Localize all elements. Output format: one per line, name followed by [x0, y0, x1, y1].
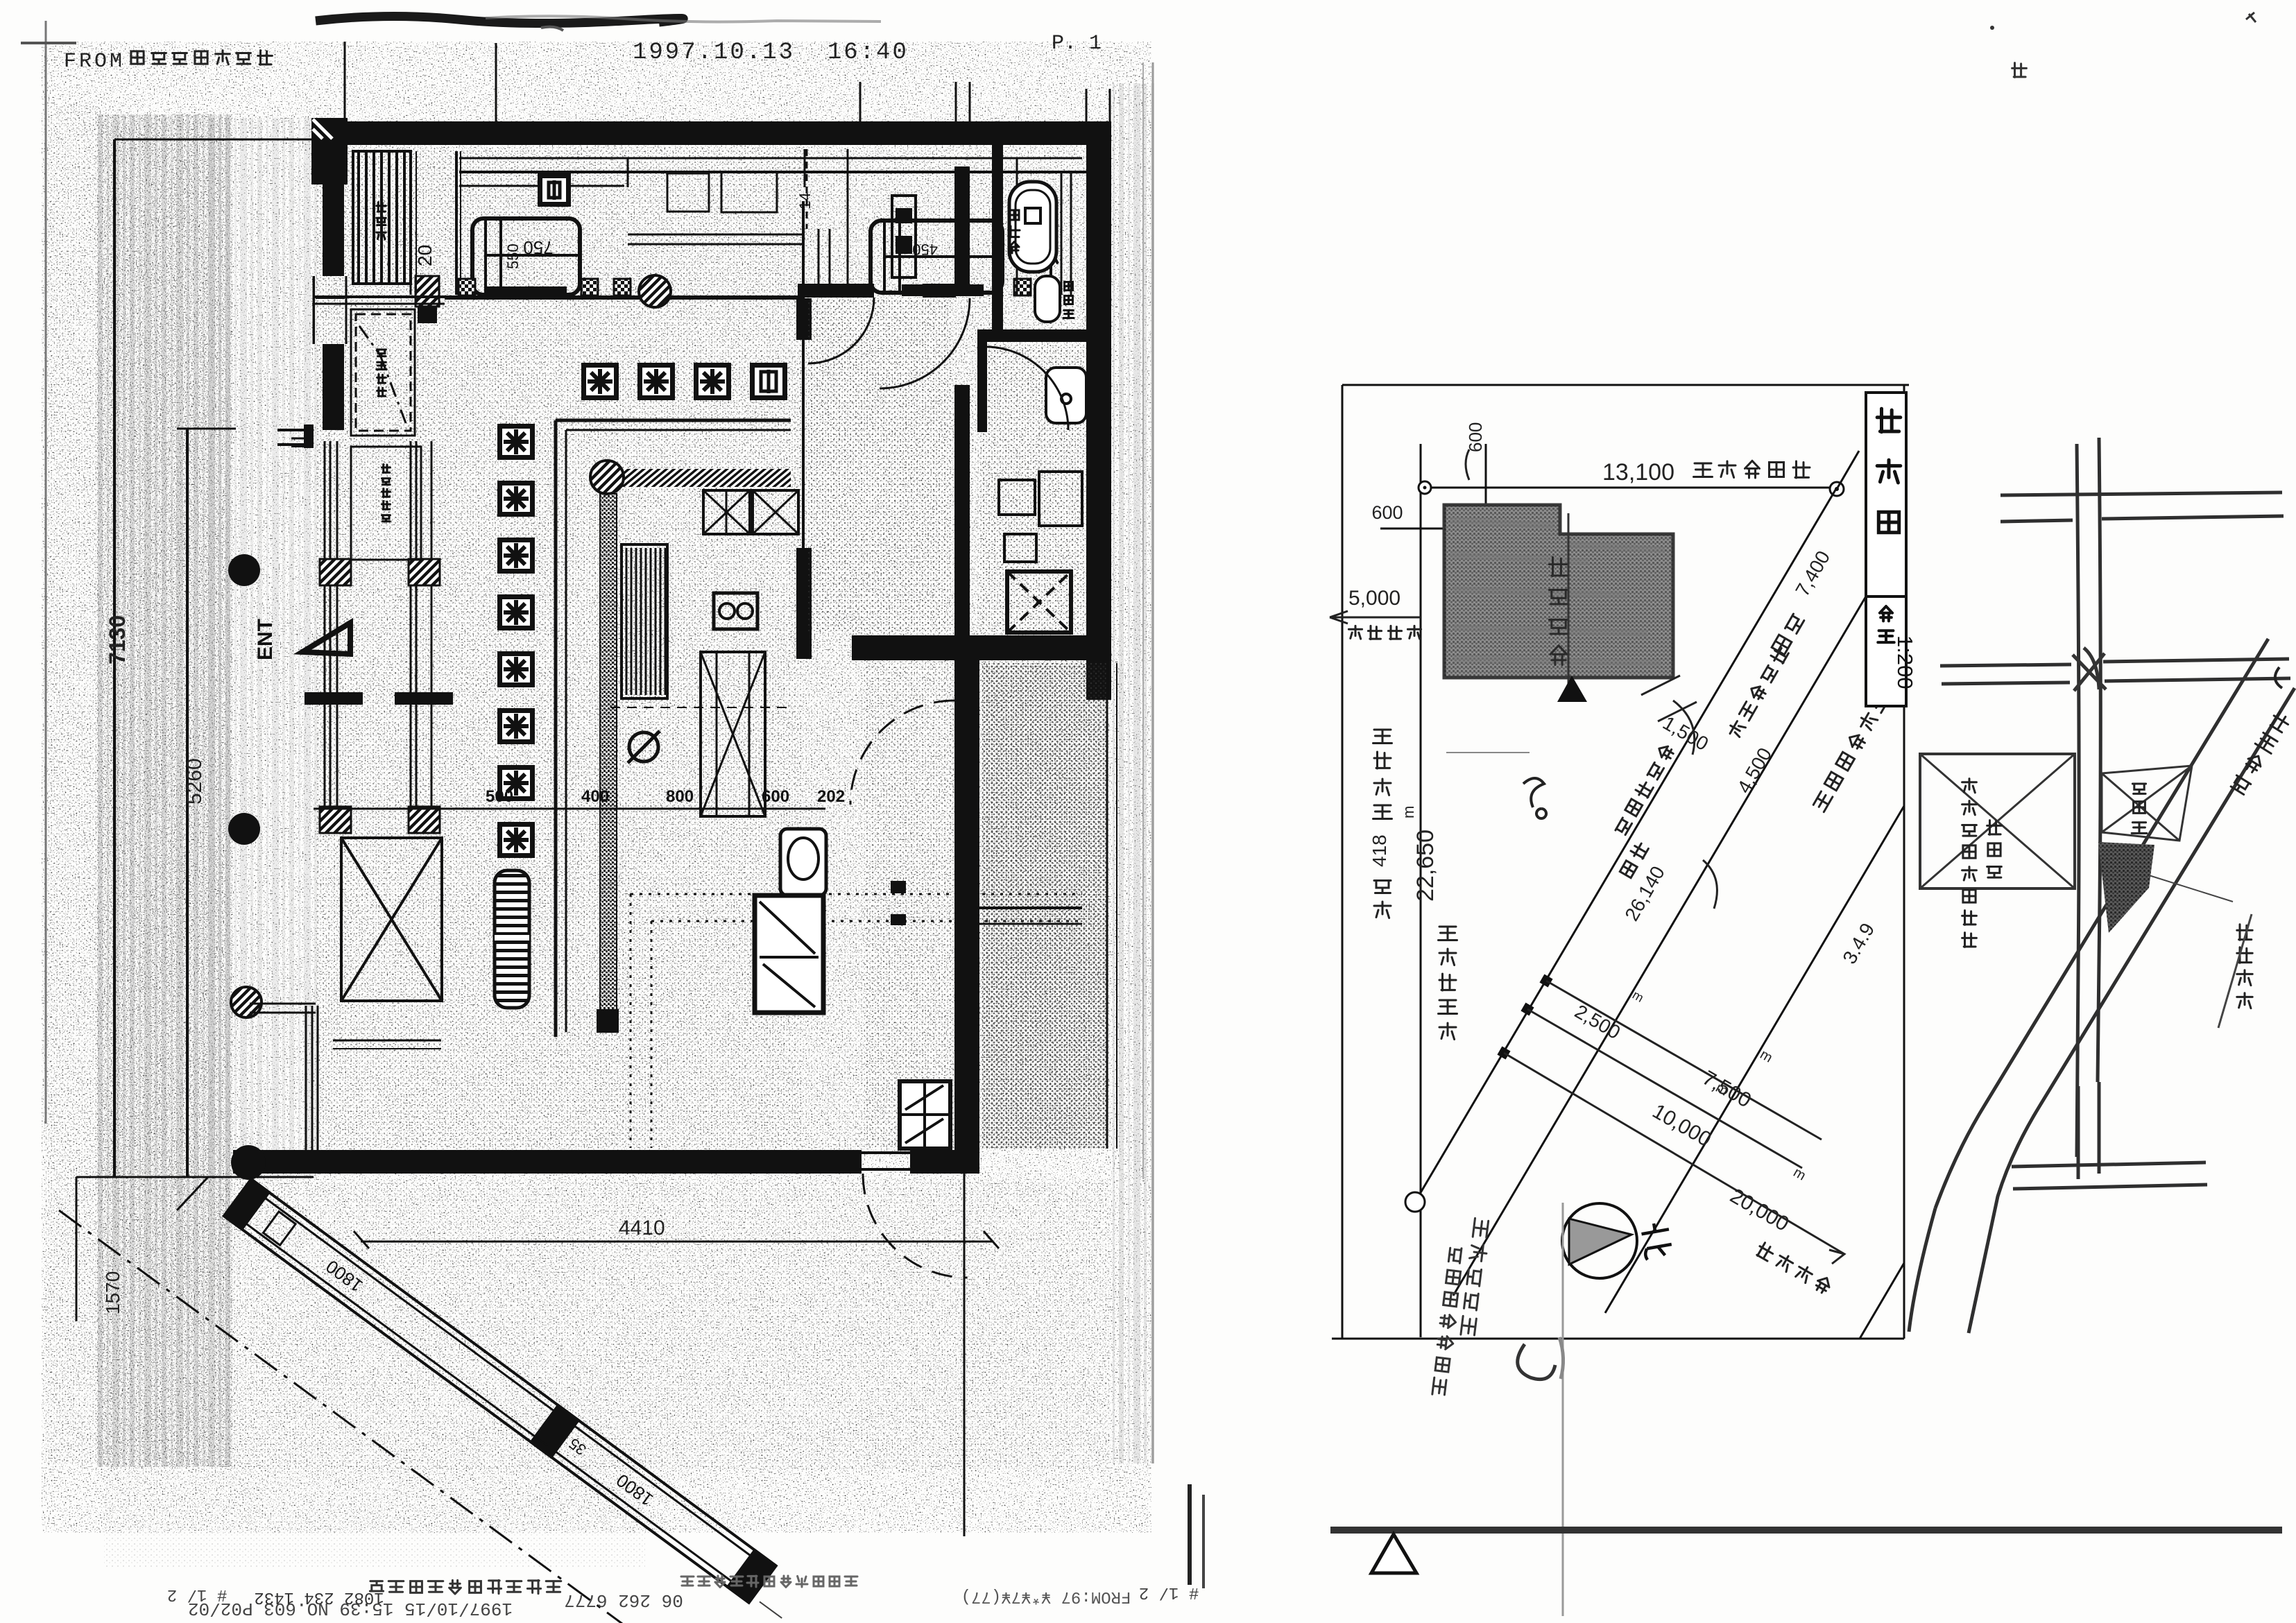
svg-text:P. 1: P. 1: [1052, 32, 1102, 55]
svg-text:600: 600: [762, 787, 789, 806]
svg-text:5,000: 5,000: [1348, 587, 1400, 610]
svg-text:750: 750: [523, 237, 553, 258]
svg-text:550: 550: [504, 243, 522, 269]
svg-text:22,650: 22,650: [1412, 830, 1439, 902]
svg-text:500: 500: [486, 787, 513, 806]
svg-text:800: 800: [666, 787, 694, 806]
svg-text:1997.10.13 16:40: 1997.10.13 16:40: [633, 40, 909, 66]
svg-text:400: 400: [581, 787, 609, 806]
svg-text:13,100: 13,100: [1602, 459, 1674, 486]
svg-text:m: m: [1400, 806, 1417, 818]
svg-text:FROM: FROM: [64, 50, 125, 74]
svg-text:14: 14: [796, 193, 814, 209]
svg-text:7130: 7130: [105, 615, 130, 664]
svg-text:1:200: 1:200: [1893, 635, 1917, 689]
svg-text:600: 600: [1465, 422, 1486, 452]
svg-text:1570: 1570: [102, 1271, 123, 1314]
svg-text:5260: 5260: [183, 758, 206, 805]
svg-text:# 1/ 2: # 1/ 2: [167, 1585, 227, 1604]
svg-text:418: 418: [1369, 834, 1390, 867]
svg-text:202: 202: [817, 787, 845, 806]
svg-text:ENT: ENT: [254, 619, 277, 660]
svg-text:1082 234 1432: 1082 234 1432: [254, 1588, 384, 1606]
svg-text:FROM:97 ¥*¥7¥(77): FROM:97 ¥*¥7¥(77): [961, 1587, 1131, 1606]
svg-text:20: 20: [414, 245, 436, 266]
svg-text:4410: 4410: [619, 1217, 665, 1239]
svg-text:# 1/ 2: # 1/ 2: [1139, 1583, 1199, 1601]
svg-text:600: 600: [1371, 502, 1403, 523]
svg-text:06 262 6777: 06 262 6777: [564, 1590, 683, 1611]
